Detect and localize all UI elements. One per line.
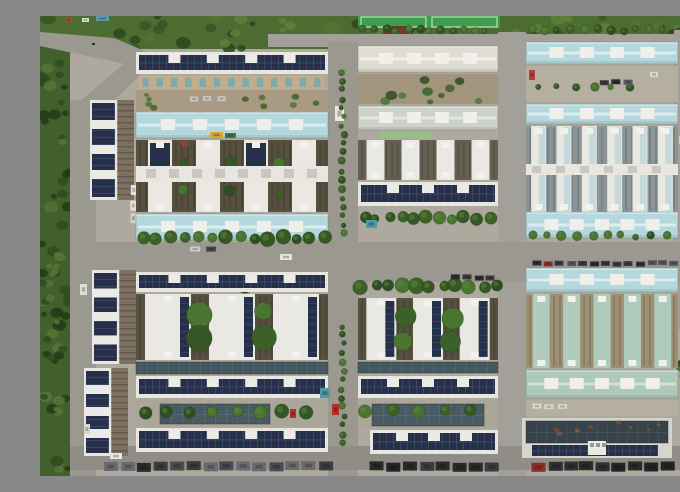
car-body: [92, 43, 95, 45]
window-line: [463, 142, 465, 178]
solar-array: [139, 431, 325, 448]
roof-box: [457, 378, 469, 387]
window-line: [421, 142, 423, 178]
tree-highlight: [208, 408, 213, 413]
facade-line: [117, 176, 134, 177]
foliage-blob: [113, 28, 125, 38]
tree-highlight: [362, 213, 367, 218]
teal-grid-roofs: [358, 362, 498, 373]
ridge-box: [610, 274, 624, 285]
box: [146, 169, 156, 178]
panel-line: [139, 63, 325, 64]
panel-line: [180, 303, 189, 304]
window-line: [325, 296, 327, 358]
facade-line: [111, 438, 128, 439]
tree-highlight: [554, 84, 556, 86]
tree-highlight: [277, 406, 283, 412]
car-glass: [228, 135, 234, 137]
ridge-box: [641, 108, 655, 119]
foliage-blob: [280, 28, 286, 33]
roof-box: [387, 378, 399, 387]
tree-highlight: [384, 281, 389, 286]
foliage-blob: [313, 101, 320, 106]
car-glass: [599, 465, 606, 469]
cyan-gable-hall: [526, 268, 678, 292]
car-glass: [568, 464, 575, 468]
solar-roof-hall: [136, 52, 328, 74]
tree-highlight: [340, 360, 343, 363]
car-glass: [547, 406, 552, 408]
rooftop-speck-teal: [96, 16, 109, 21]
tree-highlight: [633, 235, 636, 238]
courtyard-tree: [440, 331, 461, 352]
panel-line: [308, 345, 317, 346]
car-glass: [190, 464, 197, 468]
foliage-blob: [557, 431, 562, 435]
finger-solar: [308, 297, 317, 357]
ridge-box: [193, 119, 207, 130]
ridge-box: [580, 47, 594, 58]
car-glass: [488, 465, 495, 469]
ridge-box: [580, 274, 594, 285]
box: [580, 166, 589, 173]
tree-highlight: [374, 282, 379, 287]
car-glass: [207, 465, 214, 469]
ridge-box: [161, 221, 175, 232]
tree-highlight: [450, 280, 456, 286]
tree-highlight: [355, 282, 362, 289]
sage-rowhouse-fingers: [526, 294, 678, 368]
panel-line: [432, 328, 441, 329]
tree-highlight: [221, 232, 227, 238]
tree-highlight: [340, 351, 343, 354]
ac-box: [252, 142, 260, 148]
tree-highlight: [339, 177, 342, 180]
foliage-blob: [44, 81, 57, 91]
facade-line: [117, 182, 134, 183]
grid-line: [264, 362, 265, 374]
tree-highlight: [341, 441, 344, 444]
tree-highlight: [342, 141, 344, 143]
ridge-box: [435, 112, 449, 123]
solar-roof-hall: [358, 182, 498, 206]
block-upper-right: [526, 25, 678, 238]
roof-box: [422, 378, 434, 387]
car-glass: [289, 464, 296, 468]
tree-highlight: [458, 212, 464, 218]
foliage-blob: [398, 92, 406, 98]
narrow-solar-building: [84, 368, 128, 456]
car-glass: [583, 464, 590, 468]
car-glass: [560, 405, 565, 407]
tree-highlight: [664, 232, 668, 236]
aerial-photo: Aerial top-down drone photograph of a pl…: [40, 16, 680, 476]
ac-box: [598, 360, 606, 366]
car-glass: [531, 73, 534, 77]
foliage-blob: [153, 25, 164, 34]
window-line: [619, 296, 621, 366]
panel-line: [94, 300, 117, 301]
foliage-blob: [475, 98, 482, 104]
roof-box: [91, 120, 117, 129]
courtyard-tree: [395, 306, 416, 327]
facade-line: [111, 372, 128, 373]
grid-line: [317, 362, 318, 374]
tree-highlight: [574, 233, 578, 237]
tree-highlight: [293, 236, 297, 240]
foliage-blob: [53, 263, 60, 268]
car-glass: [174, 464, 181, 468]
grid-line: [433, 362, 434, 373]
grid-line: [390, 362, 391, 373]
foliage-blob: [260, 103, 267, 109]
panel-line: [180, 324, 189, 325]
stripe: [228, 78, 234, 87]
tree-highlight: [340, 98, 343, 101]
tree-highlight: [558, 232, 562, 236]
roof-box: [284, 378, 296, 387]
panel-line: [479, 314, 488, 315]
courtyard-tree: [186, 325, 212, 351]
box: [602, 443, 606, 447]
grid-line: [307, 362, 308, 374]
foliage-blob: [62, 110, 69, 116]
green-roof-strip: [380, 132, 432, 138]
ac-box: [661, 204, 669, 210]
foliage-blob: [219, 39, 230, 48]
tree-highlight: [341, 205, 344, 208]
tree-highlight: [340, 332, 343, 335]
tree-highlight: [627, 85, 631, 89]
ridge-box: [610, 108, 624, 119]
white-cars: [532, 404, 567, 410]
window-line: [643, 296, 645, 366]
car-glass: [535, 465, 542, 469]
tree-highlight: [392, 29, 396, 33]
box: [596, 443, 600, 447]
stripe: [214, 78, 220, 87]
foliage-blob: [61, 84, 68, 89]
tree-highlight: [407, 26, 410, 29]
speck-on-road: [180, 45, 184, 48]
tree-highlight: [340, 326, 342, 328]
red-car: [332, 404, 339, 415]
car-glass: [472, 465, 479, 469]
panel-line: [94, 328, 117, 329]
tree-highlight: [342, 224, 344, 226]
roof-box: [91, 170, 117, 179]
tree-highlight: [209, 234, 213, 238]
tree-highlight: [427, 29, 430, 32]
box: [192, 169, 202, 178]
foliage-blob: [249, 21, 255, 26]
car-glass: [305, 464, 312, 468]
ridge-box: [549, 274, 563, 285]
ac-box: [372, 172, 380, 178]
grid-line: [401, 362, 402, 373]
foliage-blob: [279, 18, 286, 24]
panel-line: [479, 349, 488, 350]
ridge-box: [193, 221, 207, 232]
rowhouse-fingers-courtyard-trees: [136, 294, 328, 360]
ridge-box: [595, 378, 609, 389]
window-line: [433, 142, 435, 178]
ridge-box: [463, 112, 477, 123]
roof-box: [207, 430, 219, 439]
panel-line: [479, 342, 488, 343]
ac-box: [636, 204, 644, 210]
facade-line: [111, 450, 128, 451]
car-glass: [273, 465, 280, 469]
panel-line: [180, 352, 189, 353]
ridge-box: [620, 219, 634, 230]
stripe: [314, 78, 320, 87]
car-glass: [68, 19, 71, 21]
ac-box: [611, 204, 619, 210]
foliage-blob: [41, 312, 47, 317]
finger-roof: [563, 294, 580, 368]
foliage-blob: [144, 93, 149, 97]
roof-box: [207, 54, 219, 63]
stripe: [300, 78, 306, 87]
facade-line: [119, 340, 136, 341]
panel-line: [308, 317, 317, 318]
tree-highlight: [256, 408, 262, 414]
tree-highlight: [342, 115, 344, 117]
car-glass: [602, 82, 607, 84]
tree-highlight: [435, 213, 441, 219]
car-glass: [140, 466, 147, 470]
ac-box: [292, 352, 300, 358]
tree-highlight: [341, 197, 343, 199]
solar-roof-hall: [136, 428, 328, 452]
foliage-blob: [242, 96, 249, 102]
facade-line: [117, 152, 134, 153]
roof-box: [284, 430, 296, 439]
tree-highlight: [340, 170, 342, 172]
grid-line: [243, 362, 244, 374]
facade-line: [111, 420, 128, 421]
foliage-blob: [145, 35, 155, 43]
panel-line: [244, 317, 253, 318]
cyan-gable-hall: [526, 104, 678, 124]
courtyard-tree: [178, 185, 188, 195]
car-glass: [660, 262, 665, 264]
car-glass: [603, 262, 608, 264]
tree-highlight: [397, 280, 404, 287]
panel-line: [308, 331, 317, 332]
ridge-box: [620, 378, 634, 389]
foliage-blob: [285, 21, 296, 30]
block-upper-left: [136, 52, 328, 240]
window-line: [493, 300, 495, 358]
facade-line: [117, 170, 134, 171]
facade-line: [111, 414, 128, 415]
ac-box: [252, 204, 260, 210]
solar-roof-hall: [370, 430, 498, 454]
window-line: [427, 142, 429, 178]
white-gable-hall: [358, 46, 498, 72]
window-line: [469, 142, 471, 178]
panel-line: [432, 356, 441, 357]
panel-line: [94, 307, 117, 308]
box: [169, 169, 179, 178]
car-glass: [213, 134, 220, 136]
foliage-blob: [455, 77, 465, 85]
panel-line: [92, 130, 115, 131]
tree-highlight: [568, 26, 572, 30]
grid-line: [211, 362, 212, 374]
ridge-box: [289, 119, 303, 130]
red-container: [182, 142, 188, 146]
facade-line: [111, 378, 128, 379]
foliage-blob: [58, 177, 69, 186]
stripe: [171, 78, 177, 87]
facade-line: [117, 134, 134, 135]
tree-highlight: [342, 341, 344, 343]
car-glass: [626, 81, 631, 83]
ac-box: [204, 142, 212, 148]
panel-line: [308, 352, 317, 353]
tree-highlight: [414, 407, 420, 413]
tree-highlight: [449, 216, 453, 220]
ac-box: [407, 172, 415, 178]
box: [238, 169, 248, 178]
ridge-box: [646, 219, 660, 230]
sage-gable-hall: [526, 370, 678, 398]
foliage-blob: [57, 190, 67, 198]
panel-line: [92, 116, 115, 117]
narrow-solar-building: [90, 100, 134, 200]
finger-solar: [432, 301, 441, 357]
foliage-blob: [46, 295, 55, 302]
teal-tarp: [366, 220, 377, 228]
grid-line: [275, 362, 276, 374]
ac-box: [372, 142, 380, 148]
stripe: [185, 78, 191, 87]
ac-box: [156, 204, 164, 210]
grid-line: [466, 362, 467, 373]
box: [556, 166, 565, 173]
panel-line: [308, 324, 317, 325]
roof-box: [207, 378, 219, 387]
window-line: [583, 296, 585, 366]
tree-highlight: [462, 27, 465, 30]
roof-box: [93, 289, 119, 298]
solar-roof-hall: [136, 272, 328, 292]
facade-line: [117, 164, 134, 165]
roof-box: [168, 430, 180, 439]
foliage-blob: [55, 60, 65, 68]
roof-box: [245, 430, 257, 439]
tree-highlight: [343, 415, 345, 417]
car-glass: [580, 262, 585, 264]
tree-highlight: [321, 232, 327, 238]
panel-line: [92, 186, 115, 187]
tree-highlight: [341, 422, 343, 424]
courtyard-tree: [442, 308, 464, 330]
window-line: [613, 296, 615, 366]
ridge-box: [289, 221, 303, 232]
foliage-blob: [139, 21, 150, 30]
stripe: [200, 78, 206, 87]
tree-highlight: [421, 212, 427, 218]
ridge-box: [549, 47, 563, 58]
ac-box: [537, 360, 545, 366]
tree-highlight: [647, 27, 650, 30]
tree-highlight: [605, 232, 609, 236]
tree-highlight: [339, 388, 342, 391]
yellow-container: [210, 132, 223, 138]
tree-highlight: [482, 29, 485, 32]
tree-highlight: [481, 283, 486, 288]
panel-line: [86, 447, 109, 448]
foliage-blob: [58, 346, 67, 353]
car-glass: [465, 276, 470, 278]
window-line: [673, 296, 675, 366]
ac-box: [611, 128, 619, 134]
white-car: [650, 72, 658, 77]
facade-line: [117, 140, 134, 141]
window-line: [553, 296, 555, 366]
ac-box: [560, 204, 568, 210]
panel-line: [94, 356, 117, 357]
panel-line: [432, 349, 441, 350]
roof-box: [245, 378, 257, 387]
car-glass: [456, 466, 463, 470]
facade-line: [119, 328, 136, 329]
panel-line: [385, 349, 394, 350]
car-glass: [132, 216, 135, 220]
turf: [358, 16, 500, 28]
grid-line: [380, 362, 381, 373]
tree-highlight: [340, 79, 343, 82]
facade-line: [119, 334, 136, 335]
facade-line: [117, 158, 134, 159]
window-line: [589, 296, 591, 366]
panel-line: [94, 349, 117, 350]
rowhouse-fingers-courtyard-trees: [358, 298, 498, 360]
car-glass: [477, 277, 482, 279]
stripe: [285, 78, 291, 87]
foliage-blob: [64, 466, 70, 471]
tree-highlight: [186, 409, 191, 414]
window-line: [397, 142, 399, 178]
panel-line: [92, 193, 115, 194]
roof-box: [460, 432, 472, 441]
car-glass: [664, 464, 671, 468]
grid-line: [157, 362, 158, 374]
tree-highlight: [234, 408, 239, 413]
ac-box: [598, 296, 606, 302]
foliage-blob: [53, 396, 65, 406]
facade-line: [117, 128, 134, 129]
panel-line: [432, 314, 441, 315]
foliage-blob: [616, 420, 621, 424]
grid-line: [526, 432, 668, 433]
tree-highlight: [473, 29, 477, 33]
window-line: [385, 142, 387, 178]
ridge-box: [610, 47, 624, 58]
ac-box: [585, 128, 593, 134]
car-glass: [323, 391, 328, 395]
tree-highlight: [252, 235, 257, 240]
facade-line: [119, 298, 136, 299]
ridge-box: [379, 112, 393, 123]
panel-line: [479, 307, 488, 308]
roof-box: [428, 432, 440, 441]
car-glass: [283, 256, 289, 258]
